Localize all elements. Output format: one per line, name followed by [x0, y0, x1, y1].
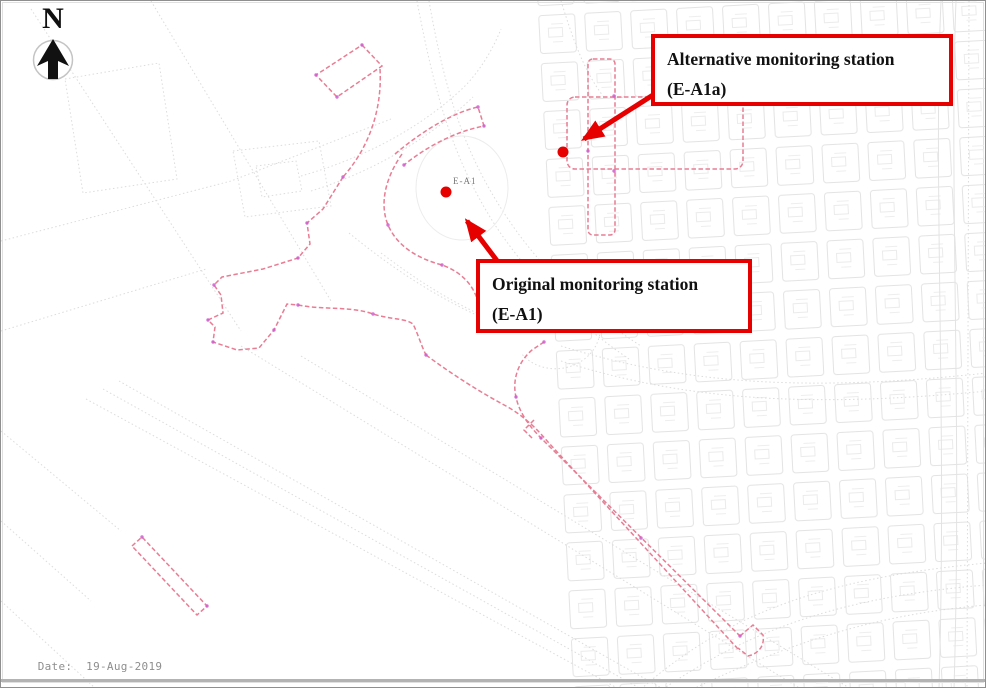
title-block: Date: 19-Aug-2019 Scale 1: 4000(A3): [10, 646, 162, 688]
station-marker-ea1: [441, 187, 452, 198]
north-arrow-icon: [23, 35, 83, 85]
callout-arrow-original: [467, 221, 498, 262]
map-label-ea1: E-A1: [453, 176, 477, 186]
callout-alternative-station: Alternative monitoring station (E-A1a): [651, 34, 953, 106]
callout-alternative-line1: Alternative monitoring station: [667, 44, 939, 74]
north-arrow: N: [23, 3, 83, 87]
map-figure: E-A1 N Alternative monitoring station (E…: [0, 0, 986, 688]
callout-original-line1: Original monitoring station: [492, 269, 738, 299]
north-label: N: [23, 3, 83, 35]
callout-original-line2: (E-A1): [492, 299, 738, 329]
date-line: Date: 19-Aug-2019: [38, 660, 163, 673]
callout-alternative-line2: (E-A1a): [667, 74, 939, 104]
callout-original-station: Original monitoring station (E-A1): [476, 259, 752, 333]
station-marker-ea1a: [558, 147, 569, 158]
